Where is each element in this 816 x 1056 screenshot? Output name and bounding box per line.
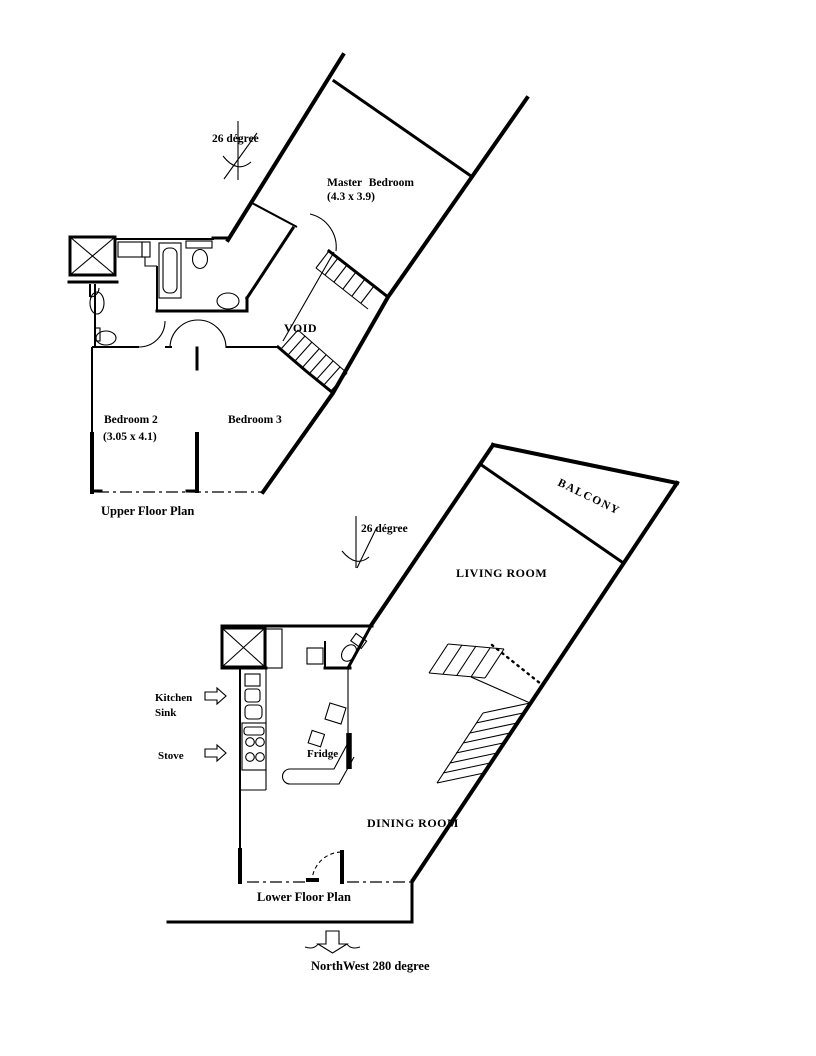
- door-arc: [310, 214, 336, 251]
- fridge-label: Fridge: [307, 748, 338, 760]
- north-arrow: [305, 931, 360, 953]
- bedroom3-label: Bedroom 3: [228, 414, 282, 426]
- kitchen-sink-label-line1: Kitchen: [155, 692, 192, 704]
- balcony-partition-wall: [480, 464, 622, 562]
- lower-plan-caption: Lower Floor Plan: [257, 890, 351, 904]
- wall: [263, 98, 527, 492]
- master-bedroom-label: Master Bedroom: [327, 177, 414, 189]
- wall: [252, 203, 297, 227]
- stool: [308, 730, 324, 746]
- dining-room-label: DINING ROOM: [367, 816, 459, 830]
- duct-column: [266, 629, 282, 668]
- stair-tread: [471, 648, 490, 677]
- stair-tread: [361, 286, 374, 303]
- lower-angle-annotation: 26 dégree: [342, 516, 408, 568]
- stair-rail: [298, 330, 347, 373]
- stove-panel: [244, 727, 264, 735]
- floor-plan-page: 26 dégree Master Bedroom (4.3 x 3.9) VOI…: [0, 0, 816, 1056]
- wall: [348, 624, 372, 668]
- compass-direction-label: NorthWest 280 degree: [311, 959, 430, 973]
- bedroom2-label: Bedroom 2: [104, 414, 158, 426]
- upper-bathroom-walls: [95, 203, 388, 347]
- stove-burner: [256, 738, 265, 747]
- stair-tread: [456, 743, 503, 753]
- lower-angle-label: 26 dégree: [361, 523, 408, 535]
- stair-rail: [429, 673, 485, 678]
- upper-angle-label: 26 dégree: [212, 133, 259, 145]
- wardrobe: [142, 242, 150, 257]
- stove-burner: [246, 753, 255, 762]
- stove-burner: [256, 753, 265, 762]
- stair-tread: [352, 279, 365, 296]
- upper-plan-caption: Upper Floor Plan: [101, 504, 194, 518]
- floor-plan-drawing: 26 dégree Master Bedroom (4.3 x 3.9) VOI…: [0, 0, 816, 1056]
- bathtub-inner: [163, 248, 177, 293]
- stair-tread: [429, 644, 448, 673]
- wall: [228, 55, 343, 240]
- stair-cut-line: [492, 645, 541, 684]
- void-label: VOID: [284, 321, 317, 335]
- stair-tread: [325, 258, 338, 275]
- arrow-right-icon: [205, 688, 226, 704]
- stair-tread: [334, 265, 347, 282]
- kitchen-sink-label-line2: Sink: [155, 707, 177, 719]
- wash-basin: [307, 648, 323, 664]
- stair-tread: [476, 713, 523, 723]
- stair-stringer: [471, 677, 530, 703]
- upper-floor-plan: 26 dégree Master Bedroom (4.3 x 3.9) VOI…: [69, 55, 527, 518]
- living-room-label: LIVING ROOM: [456, 566, 547, 580]
- north-arrow-flanges: [305, 944, 360, 948]
- elevator-shaft-lower: [222, 628, 282, 668]
- fridge-box: [325, 703, 346, 724]
- stair-rail: [437, 713, 483, 783]
- kitchen-sink-basin: [245, 705, 262, 719]
- toilet: [217, 293, 239, 309]
- wardrobe: [118, 242, 142, 257]
- stove-burner: [246, 738, 255, 747]
- wall: [334, 81, 471, 176]
- arrow-right-icon: [205, 745, 226, 761]
- door-arc: [139, 321, 165, 347]
- lower-floor-plan: 26 dégree BALCONY LIVING ROOM DINING ROO…: [155, 445, 677, 973]
- master-bedroom-dims: (4.3 x 3.9): [327, 191, 375, 203]
- stair-rail: [448, 644, 504, 649]
- entry-door-arc: [312, 852, 342, 882]
- vanity-shelf: [186, 241, 212, 248]
- upper-angle-annotation: 26 dégree: [212, 121, 259, 180]
- north-arrow-icon: [318, 931, 347, 953]
- balcony-label: BALCONY: [556, 477, 622, 518]
- bathtub: [159, 243, 181, 298]
- sink-basin: [90, 292, 104, 314]
- sink-basin: [193, 250, 208, 269]
- kitchen-fixtures: [240, 668, 354, 790]
- stove-unit: [242, 723, 266, 770]
- wall: [247, 228, 293, 298]
- bedroom2-dims: (3.05 x 4.1): [103, 431, 157, 443]
- stair-tread: [316, 251, 329, 268]
- kitchen-sink-basin: [245, 689, 260, 702]
- toilet: [96, 331, 116, 345]
- wall: [493, 445, 677, 483]
- elevator-shaft-upper: [69, 237, 117, 297]
- kitchen-sink-unit: [245, 674, 260, 686]
- kitchen-label-arrows: [205, 688, 226, 761]
- door-arc: [170, 320, 226, 348]
- stair-tread: [457, 646, 476, 675]
- stove-label: Stove: [158, 750, 184, 762]
- closet-step: [145, 257, 157, 266]
- stair-tread: [443, 645, 462, 674]
- stair-tread: [343, 272, 356, 289]
- upper-bathroom-fixtures: [90, 241, 239, 345]
